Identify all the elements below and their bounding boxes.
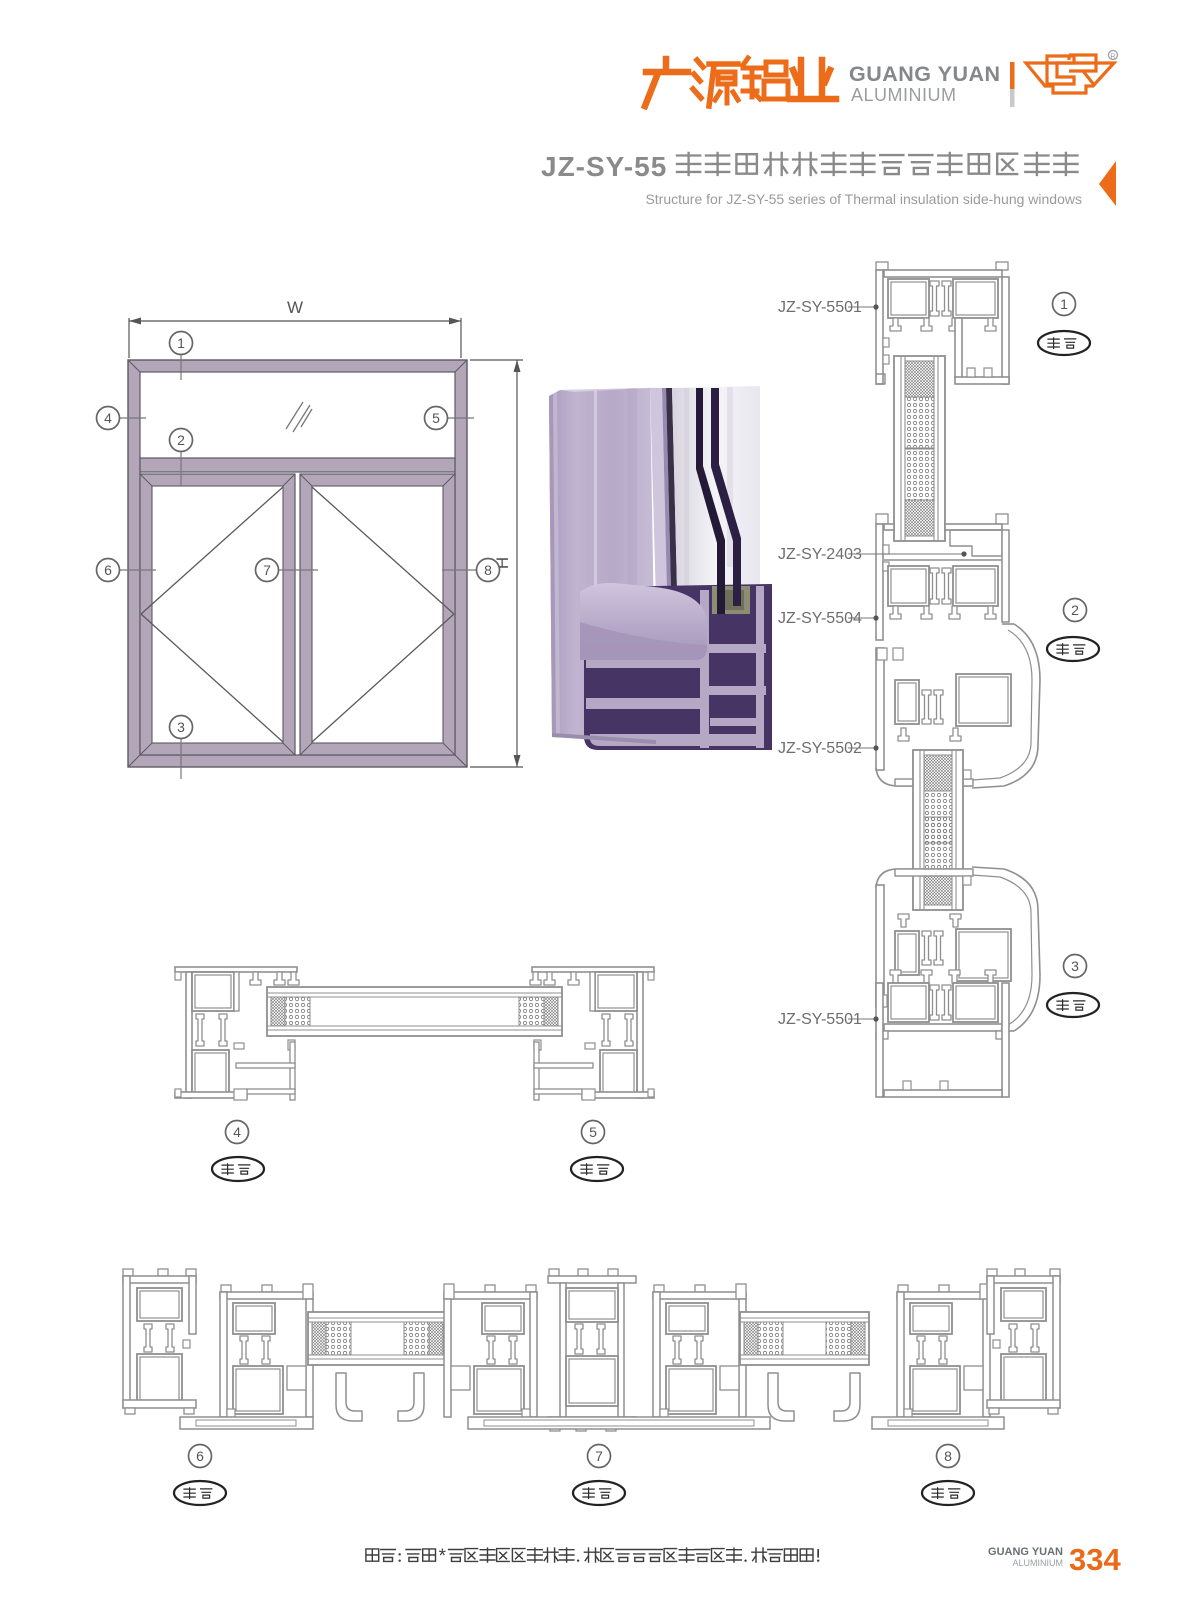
svg-text:*: * (439, 1546, 447, 1567)
svg-text:1: 1 (177, 335, 185, 351)
svg-text:3: 3 (177, 719, 185, 735)
svg-text:5: 5 (432, 410, 440, 426)
svg-text:6: 6 (104, 562, 112, 578)
svg-text:8: 8 (944, 1448, 952, 1464)
svg-text:GUANG YUAN: GUANG YUAN (988, 1546, 1063, 1558)
svg-text:GUANG YUAN: GUANG YUAN (849, 62, 1001, 86)
svg-text:ALUMINIUM: ALUMINIUM (1012, 1558, 1063, 1568)
svg-text:7: 7 (263, 562, 271, 578)
svg-text:2: 2 (1071, 602, 1079, 618)
svg-text:2: 2 (177, 432, 185, 448)
svg-text:1: 1 (1060, 296, 1068, 312)
svg-text:Structure for JZ-SY-55 series: Structure for JZ-SY-55 series of Thermal… (645, 191, 1082, 207)
svg-text:5: 5 (589, 1124, 597, 1140)
svg-text:ALUMINIUM: ALUMINIUM (851, 85, 957, 105)
svg-text:7: 7 (595, 1448, 603, 1464)
svg-text:3: 3 (1071, 958, 1079, 974)
svg-text:R: R (1110, 54, 1115, 61)
svg-text:4: 4 (233, 1124, 241, 1140)
svg-text:8: 8 (484, 562, 492, 578)
svg-text:6: 6 (196, 1448, 204, 1464)
svg-text:4: 4 (104, 410, 112, 426)
svg-text:JZ-SY-55: JZ-SY-55 (541, 151, 667, 182)
svg-text:W: W (287, 298, 303, 317)
svg-text:334: 334 (1069, 1542, 1121, 1577)
